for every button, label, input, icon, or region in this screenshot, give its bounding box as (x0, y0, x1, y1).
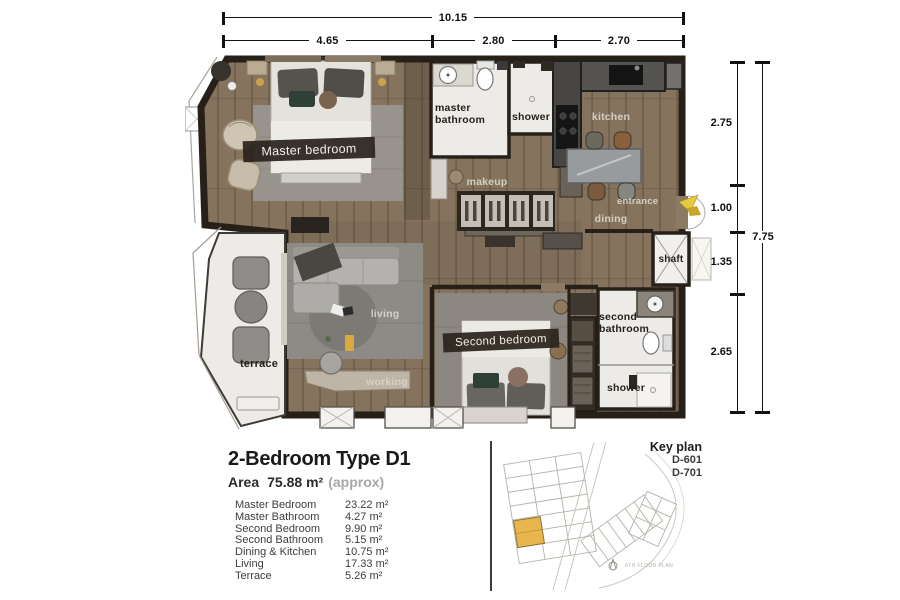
floorplan-page: 10.15 4.65 2.80 2.70 2.75 1.00 1. (0, 0, 900, 600)
area-label: Area (228, 474, 259, 490)
dim-label-total-height: 7.75 (747, 231, 779, 243)
keyplan-divider (490, 441, 492, 591)
dim-total-width: 10.15 (223, 8, 683, 28)
room-label-dining: dining (587, 213, 635, 225)
north-arrow-icon (609, 559, 617, 570)
room-label-working: working (359, 376, 415, 388)
keyplan-title: Key plan (562, 440, 702, 454)
room-label-shower-master: shower (507, 111, 555, 123)
room-label-shower-second: shower (601, 382, 651, 394)
room-label-living: living (361, 308, 409, 320)
room-label-kitchen: kitchen (583, 111, 639, 123)
keyplan-unit: D-701 (562, 467, 702, 480)
room-label-master-bathroom: master bathroom (435, 102, 487, 126)
area-value: 75.88 m² (267, 474, 323, 490)
table-row: Second Bedroom9.90 m² (235, 523, 478, 535)
dim-label-seg-2: 2.80 (475, 35, 511, 47)
area-table: Master Bedroom23.22 m² Master Bathroom4.… (235, 499, 478, 582)
dim-seg-3: 2.70 (555, 31, 683, 51)
area-summary: Area75.88 m²(approx) (228, 474, 478, 490)
dim-seg-1: 4.65 (223, 31, 432, 51)
dim-label-seg-1: 4.65 (309, 35, 345, 47)
unit-info: 2-Bedroom Type D1 Area75.88 m²(approx) M… (228, 448, 478, 582)
page-title: 2-Bedroom Type D1 (228, 448, 478, 471)
keyplan-caption: 6TH FLOOR PLAN (625, 563, 673, 569)
table-row: Dining & Kitchen10.75 m² (235, 546, 478, 558)
room-label-entrance: entrance (617, 197, 663, 208)
table-row: Living17.33 m² (235, 558, 478, 570)
dimension-top: 10.15 4.65 2.80 2.70 (223, 8, 683, 51)
dim-label-seg-3: 2.70 (601, 35, 637, 47)
room-label-terrace: terrace (231, 358, 287, 371)
keyplan-unit: D-601 (562, 454, 702, 467)
room-label-makeup: makeup (457, 176, 517, 188)
table-row: Master Bathroom4.27 m² (235, 511, 478, 523)
floor-plan: Master bedroom master bathroom shower ki… (185, 55, 715, 432)
dim-seg-2: 2.80 (432, 31, 555, 51)
keyplan-text: Key plan D-601 D-701 (562, 440, 702, 480)
room-label-second-bathroom: second bathroom (599, 311, 653, 335)
table-row: Terrace5.26 m² (235, 570, 478, 582)
room-label-shaft: shaft (653, 254, 689, 266)
table-row: Second Bathroom5.15 m² (235, 534, 478, 546)
table-row: Master Bedroom23.22 m² (235, 499, 478, 511)
dim-label-total-width: 10.15 (432, 12, 475, 24)
area-note: (approx) (328, 474, 384, 490)
